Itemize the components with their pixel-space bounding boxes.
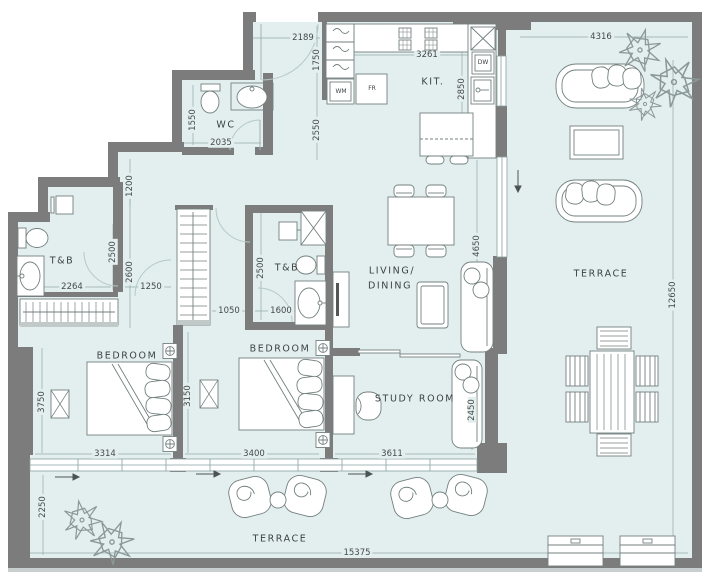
tb-left-toilet bbox=[18, 228, 48, 248]
outdoor-dining-chair[interactable] bbox=[566, 356, 588, 386]
dim-2250: 2250 bbox=[39, 494, 48, 520]
ac-vent-icon bbox=[316, 341, 330, 356]
sofa-living[interactable] bbox=[461, 262, 493, 352]
entrance-opening[interactable] bbox=[256, 12, 318, 22]
dim-1200: 1200 bbox=[126, 173, 135, 199]
outdoor-sofa-2[interactable] bbox=[556, 180, 642, 222]
bed-bedroom1[interactable] bbox=[87, 362, 172, 435]
tv-unit-bedroom1 bbox=[51, 390, 69, 418]
tv-console-living bbox=[333, 272, 349, 327]
kitchen-counter-top bbox=[354, 24, 470, 52]
tb-mid-sink bbox=[295, 281, 326, 325]
ac-vent-icon bbox=[316, 433, 330, 448]
appliance-label-fr: FR bbox=[368, 86, 376, 92]
dim-1550: 1550 bbox=[189, 107, 198, 133]
dim-2850: 2850 bbox=[458, 76, 467, 102]
room-label-kitchen: KIT. bbox=[421, 77, 444, 87]
coffee-table bbox=[417, 282, 448, 328]
dim-3261: 3261 bbox=[414, 51, 440, 60]
dim-1250: 1250 bbox=[138, 283, 164, 292]
water-heater bbox=[51, 196, 73, 214]
dim-4316: 4316 bbox=[588, 33, 614, 42]
dim-15375: 15375 bbox=[341, 549, 372, 558]
wardrobe-hall[interactable] bbox=[177, 209, 210, 325]
room-label-bedroom-mid: BEDROOM bbox=[250, 344, 311, 354]
appliance-label-wm: WM bbox=[335, 89, 346, 95]
side-table bbox=[270, 492, 286, 508]
tb-mid-toilet bbox=[296, 256, 325, 274]
dim-3750: 3750 bbox=[38, 389, 47, 415]
dim-12650: 12650 bbox=[669, 279, 678, 310]
outdoor-dining-chair[interactable] bbox=[597, 327, 631, 349]
tb-left-sink bbox=[17, 256, 44, 296]
outdoor-table bbox=[570, 126, 623, 159]
kitchen-sink bbox=[471, 77, 494, 104]
tv-unit-bedroom2 bbox=[200, 380, 218, 408]
dim-2500-right: 2500 bbox=[257, 255, 266, 281]
room-label-wc: WC bbox=[216, 120, 235, 130]
wardrobe-bedroom1[interactable] bbox=[20, 299, 118, 327]
room-label-living-2: DINING bbox=[368, 281, 412, 291]
floor-plan-canvas bbox=[0, 0, 702, 584]
bar-stool[interactable] bbox=[426, 156, 444, 164]
dim-1600: 1600 bbox=[268, 307, 294, 316]
bar-stool[interactable] bbox=[450, 156, 468, 164]
room-label-living-1: LIVING/ bbox=[369, 266, 415, 276]
wc-toilet bbox=[201, 84, 220, 113]
study-sliding-door[interactable] bbox=[358, 350, 400, 353]
dim-3611: 3611 bbox=[379, 450, 405, 459]
appliance-label-dw: DW bbox=[478, 60, 489, 66]
dim-3150: 3150 bbox=[184, 383, 193, 409]
dim-2035: 2035 bbox=[208, 139, 234, 148]
dim-3400: 3400 bbox=[241, 450, 267, 459]
outdoor-dining-table bbox=[590, 351, 634, 433]
kitchen-tall-cabinet bbox=[326, 24, 354, 78]
dim-2600: 2600 bbox=[126, 259, 135, 285]
side-table bbox=[432, 492, 448, 508]
outdoor-dining-chair[interactable] bbox=[566, 392, 588, 422]
outdoor-dining-chair[interactable] bbox=[636, 392, 658, 422]
room-label-bedroom-left: BEDROOM bbox=[97, 351, 158, 361]
floor-plan: WC T&B T&B KIT. LIVING/ DINING BEDROOM B… bbox=[0, 0, 702, 584]
room-label-terrace-right: TERRACE bbox=[574, 269, 629, 279]
outdoor-dining-chair[interactable] bbox=[636, 356, 658, 386]
dim-2264: 2264 bbox=[59, 283, 85, 292]
dim-2500-left: 2500 bbox=[109, 239, 118, 265]
outdoor-sofa-1[interactable] bbox=[556, 64, 644, 108]
kitchen-island bbox=[420, 113, 473, 156]
planter-bench bbox=[548, 536, 603, 566]
dining-chair[interactable] bbox=[426, 245, 446, 257]
dim-3314: 3314 bbox=[92, 450, 118, 459]
bed-bedroom2[interactable] bbox=[239, 358, 324, 430]
outdoor-dining-chair[interactable] bbox=[597, 434, 631, 456]
ac-vent-icon bbox=[163, 344, 177, 359]
kitchen-window bbox=[497, 56, 506, 106]
planter-bench bbox=[620, 536, 675, 566]
room-label-study: STUDY ROOM bbox=[375, 394, 455, 404]
study-desk bbox=[333, 376, 354, 434]
tb-mid-shower bbox=[301, 211, 326, 245]
room-label-tb-mid: T&B bbox=[275, 263, 300, 273]
dim-4650: 4650 bbox=[473, 233, 482, 259]
dim-1750: 1750 bbox=[313, 47, 322, 73]
dim-2450: 2450 bbox=[468, 397, 477, 423]
room-label-terrace-bottom: TERRACE bbox=[253, 534, 308, 544]
shaft-icon bbox=[471, 27, 495, 50]
study-sliding-door[interactable] bbox=[400, 354, 460, 357]
dim-2189: 2189 bbox=[290, 34, 316, 43]
dining-table bbox=[388, 197, 454, 245]
dining-chair[interactable] bbox=[394, 245, 414, 257]
dim-2550: 2550 bbox=[313, 117, 322, 143]
dining-chair[interactable] bbox=[394, 185, 414, 197]
dim-1050: 1050 bbox=[216, 307, 242, 316]
dining-chair[interactable] bbox=[426, 185, 446, 197]
room-label-tb-left: T&B bbox=[50, 256, 75, 266]
ac-vent-icon bbox=[163, 437, 177, 452]
